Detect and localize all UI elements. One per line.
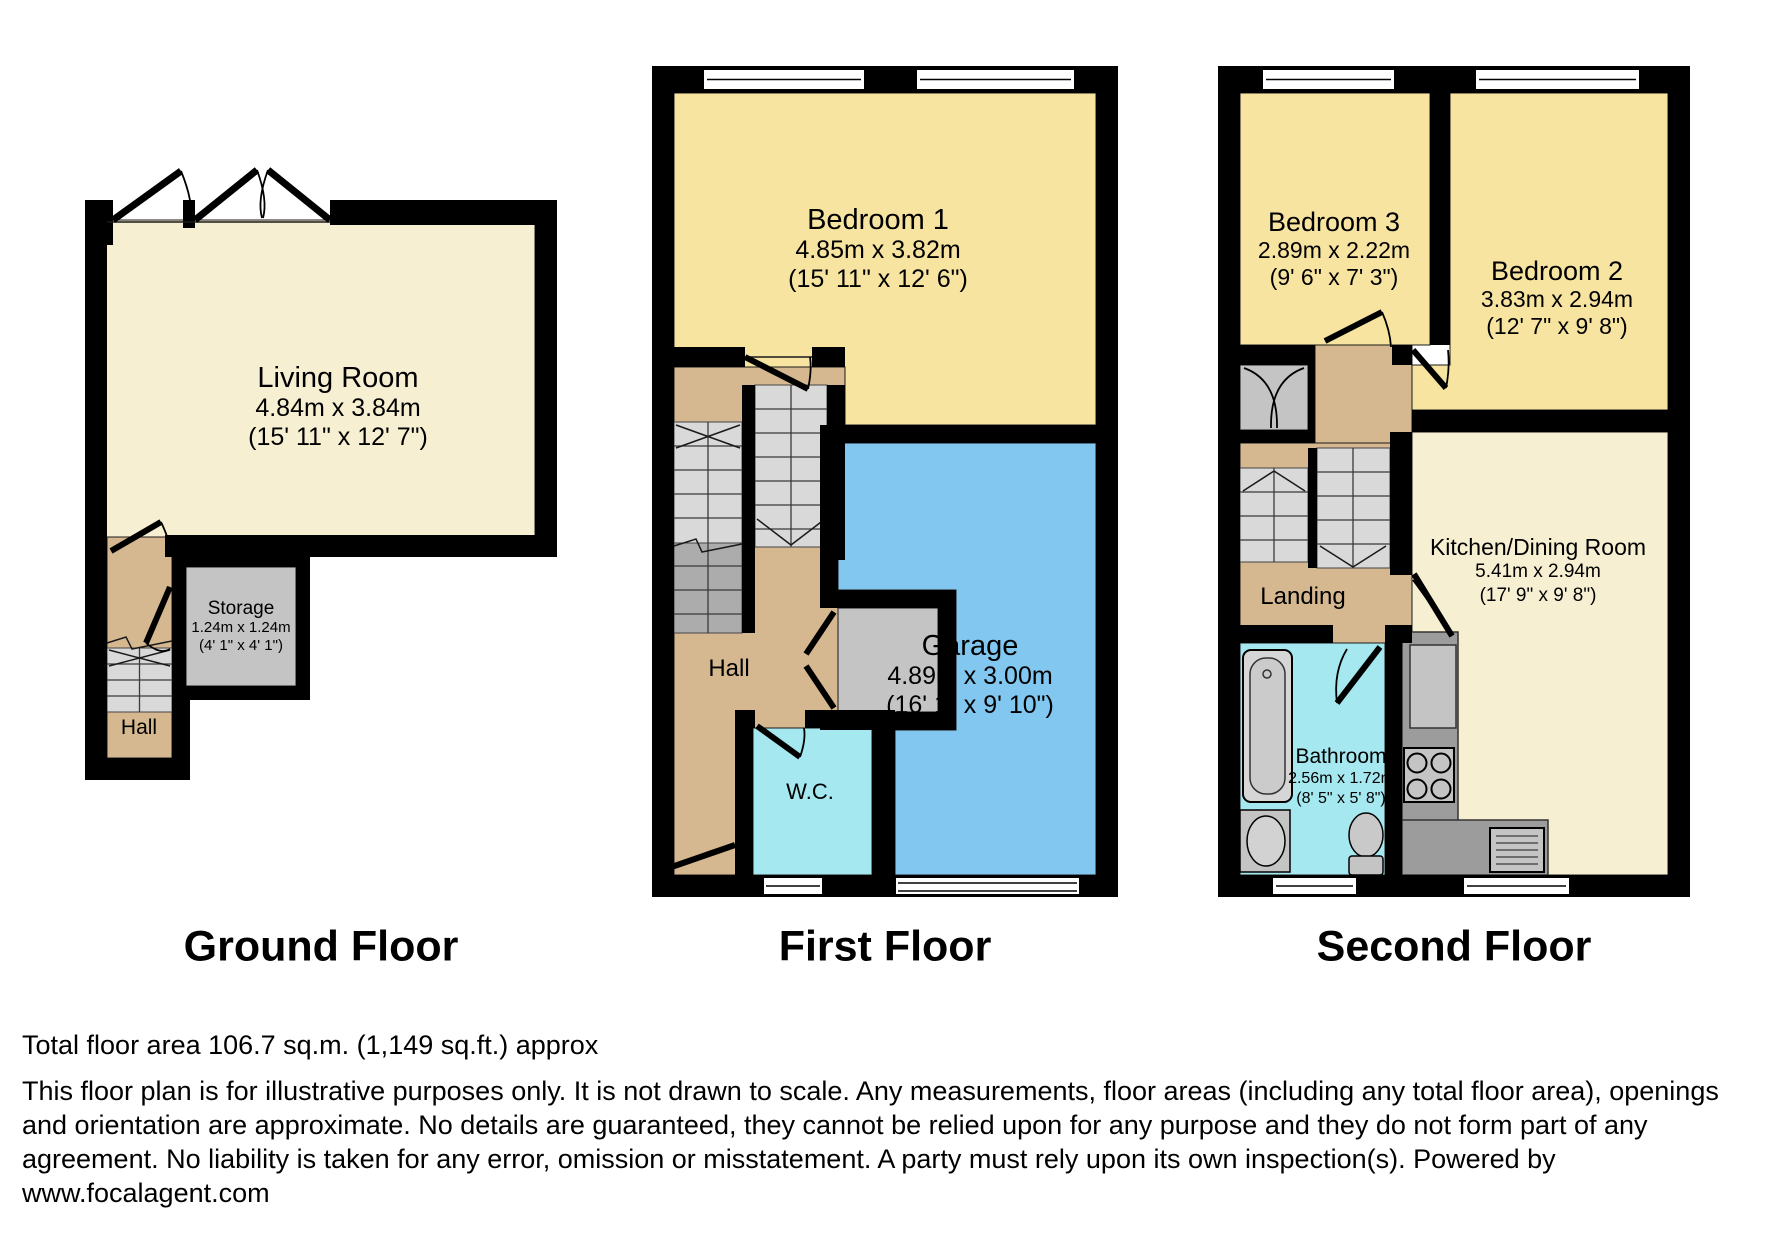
bathroom-toilet bbox=[1349, 813, 1383, 857]
room-metric: 4.84m x 3.84m bbox=[248, 394, 428, 423]
room-imperial: (8' 5" x 5' 8") bbox=[1288, 789, 1394, 808]
room-imperial: (15' 11" x 12' 7") bbox=[248, 423, 428, 451]
room-name: W.C. bbox=[786, 779, 834, 804]
garage-label: Garage 4.89m x 3.00m (16' 1" x 9' 10") bbox=[886, 630, 1054, 719]
room-name: Bedroom 3 bbox=[1258, 207, 1410, 237]
landing-label: Landing bbox=[1260, 583, 1345, 610]
patio-door-leaf bbox=[113, 171, 181, 220]
disclaimer-text: This floor plan is for illustrative purp… bbox=[22, 1074, 1734, 1210]
room-imperial: (17' 9" x 9' 8") bbox=[1430, 584, 1646, 607]
room-metric: 1.24m x 1.24m bbox=[191, 619, 290, 637]
bedroom-3-label: Bedroom 3 2.89m x 2.22m (9' 6" x 7' 3") bbox=[1258, 207, 1410, 290]
second-cupboard-floor bbox=[1240, 365, 1308, 430]
kitchen-dining-label: Kitchen/Dining Room 5.41m x 2.94m (17' 9… bbox=[1430, 534, 1646, 607]
room-metric: 4.89m x 3.00m bbox=[886, 662, 1054, 691]
floorplan-page: Living Room 4.84m x 3.84m (15' 11" x 12'… bbox=[0, 0, 1771, 1239]
bedroom-1-label: Bedroom 1 4.85m x 3.82m (15' 11" x 12' 6… bbox=[788, 204, 968, 293]
ground-floor-plan bbox=[70, 150, 570, 790]
first-floor-plan bbox=[640, 55, 1130, 905]
first-floor-title: First Floor bbox=[779, 923, 992, 972]
room-imperial: (4' 1" x 4' 1") bbox=[191, 637, 290, 654]
living-room-label: Living Room 4.84m x 3.84m (15' 11" x 12'… bbox=[248, 362, 428, 451]
room-imperial: (16' 1" x 9' 10") bbox=[886, 691, 1054, 719]
french-door-left-leaf bbox=[195, 170, 257, 220]
room-name: Hall bbox=[708, 655, 749, 682]
garage-door bbox=[895, 877, 1080, 895]
ground-floor-title: Ground Floor bbox=[184, 923, 459, 972]
ground-hall-label: Hall bbox=[121, 716, 157, 740]
room-name: Bedroom 1 bbox=[788, 204, 968, 236]
bedroom-2-label: Bedroom 2 3.83m x 2.94m (12' 7" x 9' 8") bbox=[1481, 256, 1633, 339]
room-metric: 2.89m x 2.22m bbox=[1258, 237, 1410, 264]
storage-label: Storage 1.24m x 1.24m (4' 1" x 4' 1") bbox=[191, 598, 290, 654]
room-imperial: (12' 7" x 9' 8") bbox=[1481, 313, 1633, 339]
room-imperial: (15' 11" x 12' 6") bbox=[788, 265, 968, 293]
second-floor-title: Second Floor bbox=[1317, 923, 1592, 972]
room-name: Landing bbox=[1260, 583, 1345, 610]
room-metric: 5.41m x 2.94m bbox=[1430, 560, 1646, 584]
room-metric: 4.85m x 3.82m bbox=[788, 236, 968, 265]
bedroom-2-floor bbox=[1412, 93, 1668, 410]
room-name: Storage bbox=[191, 598, 290, 619]
room-name: Hall bbox=[121, 716, 157, 740]
second-floor-plan bbox=[1195, 55, 1705, 905]
room-name: Kitchen/Dining Room bbox=[1430, 534, 1646, 560]
ground-stairs bbox=[107, 637, 172, 712]
first-hall-label: Hall bbox=[708, 655, 749, 682]
room-imperial: (9' 6" x 7' 3") bbox=[1258, 264, 1410, 290]
room-name: Living Room bbox=[248, 362, 428, 394]
wc-label: W.C. bbox=[786, 779, 834, 804]
total-floor-area: Total floor area 106.7 sq.m. (1,149 sq.f… bbox=[22, 1030, 598, 1061]
room-metric: 2.56m x 1.72m bbox=[1288, 769, 1394, 789]
bathroom-label: Bathroom 2.56m x 1.72m (8' 5" x 5' 8") bbox=[1288, 745, 1394, 808]
room-metric: 3.83m x 2.94m bbox=[1481, 286, 1633, 313]
room-name: Garage bbox=[886, 630, 1054, 662]
room-name: Bedroom 2 bbox=[1481, 256, 1633, 286]
french-door-right-leaf bbox=[268, 170, 330, 220]
room-name: Bathroom bbox=[1288, 745, 1394, 769]
